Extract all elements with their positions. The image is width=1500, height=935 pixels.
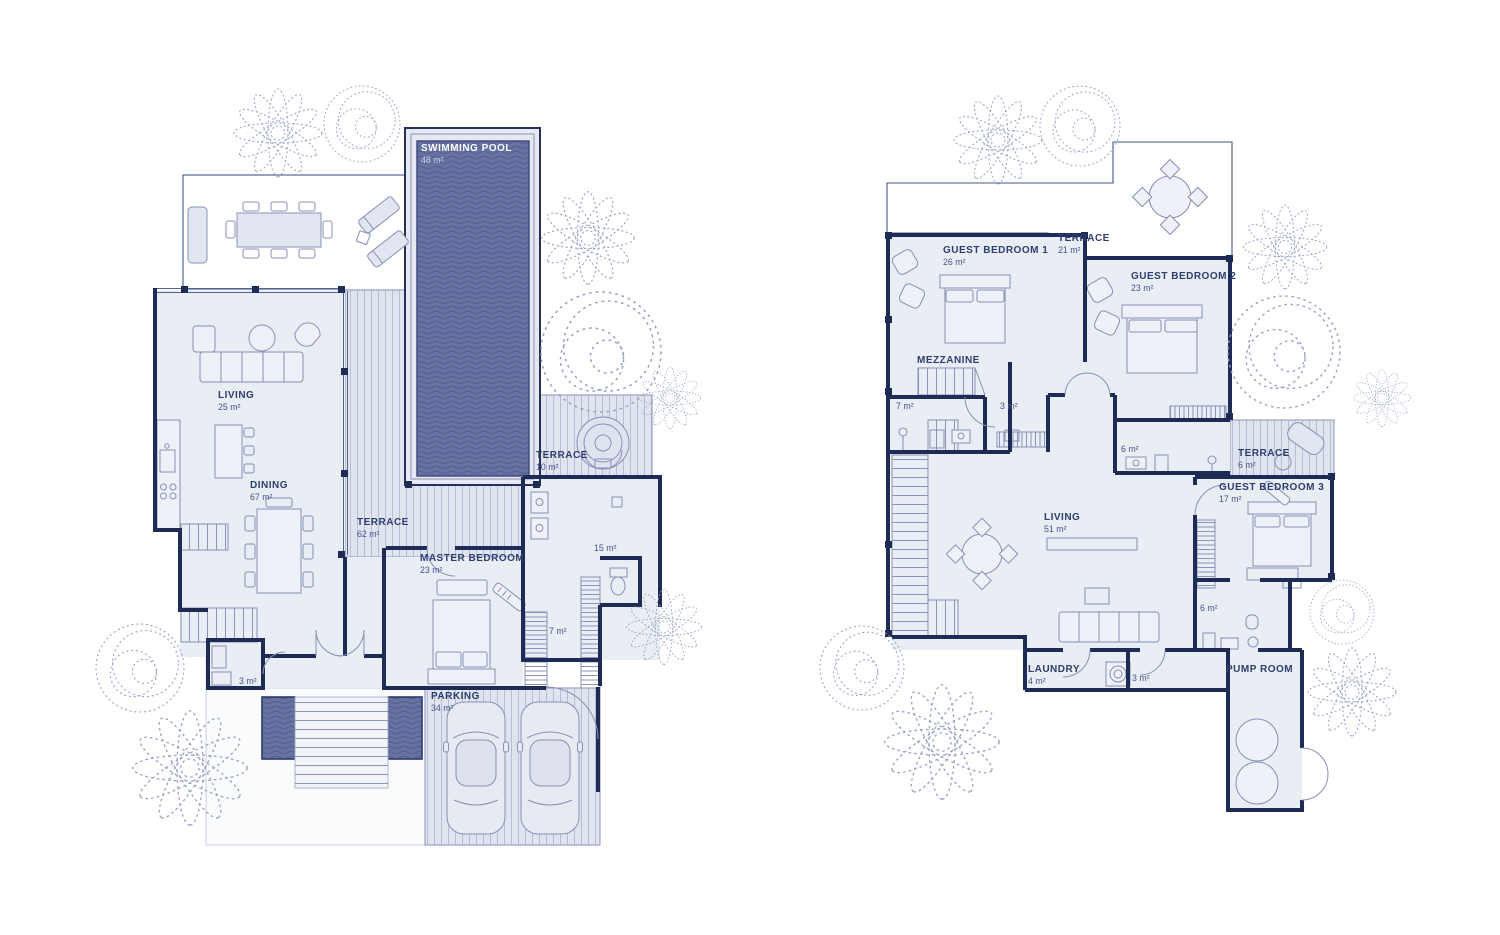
room-area-wardrobe-7: 7 m² [549,626,567,636]
living-furniture [193,323,320,382]
palm-tree [954,96,1042,184]
pool-water [417,141,529,476]
room-area-terrace-6: 6 m² [1238,460,1256,470]
round-tree [324,86,400,162]
room-label-laundry: LAUNDRY [1028,664,1080,675]
palm-tree [1243,205,1327,289]
room-area-wc-3b: 3 m² [1132,673,1150,683]
car-2 [518,702,583,834]
room-area-terrace-10: 10 m² [536,462,559,472]
room-area-bath-6: 6 m² [1121,444,1139,454]
room-label-swimming-pool: SWIMMING POOL [421,143,512,154]
room-area-living-upper: 51 m² [1044,524,1067,534]
round-tree [1040,86,1120,166]
pump-room-doors [1302,748,1328,800]
water-pond-right [388,697,422,759]
room-area-terrace-21: 21 m² [1058,245,1081,255]
ground-floor-plan [155,128,660,845]
room-label-living-upper: LIVING [1044,512,1080,523]
car-1 [444,702,509,834]
floor-plan-canvas: SWIMMING POOL 48 m² LIVING 25 m² DINING … [0,0,1500,935]
sun-lounger [357,196,400,234]
room-area-terrace-62: 62 m² [357,529,380,539]
room-area-master-bedroom: 23 m² [420,565,443,575]
room-label-pump-room: PUMP ROOM [1226,664,1293,675]
room-area-bathroom-15: 15 m² [594,543,617,553]
room-area-guest-bedroom-3: 17 m² [1219,494,1242,504]
room-label-terrace-62: TERRACE [357,517,409,528]
room-area-living: 25 m² [218,402,241,412]
room-area-bath-7: 7 m² [896,401,914,411]
large-tree [541,292,661,412]
room-label-guest-bedroom-3: GUEST BEDROOM 3 [1219,482,1324,493]
room-area-dining: 67 m² [250,492,273,502]
round-tree [820,626,904,710]
jacuzzi [577,417,629,469]
water-pond-left [262,697,295,759]
sun-lounger [366,230,409,268]
room-area-bath-6b: 6 m² [1200,603,1218,613]
palm-tree [234,89,322,177]
palm-tree [542,192,634,284]
palm-tree [885,685,999,799]
room-label-living: LIVING [218,390,254,401]
entry-steps [295,697,388,788]
room-label-mezzanine: MEZZANINE [917,355,980,366]
room-area-guest-bedroom-2: 23 m² [1131,283,1154,293]
round-tree [96,624,184,712]
terrace-sofa [188,207,207,263]
floor-plans-drawing: SWIMMING POOL 48 m² LIVING 25 m² DINING … [0,0,1500,935]
room-area-laundry: 4 m² [1028,676,1046,686]
room-area-parking: 34 m² [431,703,454,713]
room-area-guest-bedroom-1: 26 m² [943,257,966,267]
coffee-table [249,325,275,351]
large-tree [1228,296,1340,408]
palm-tree [1308,648,1396,736]
room-label-terrace-21: TERRACE [1058,233,1110,244]
room-area-wc-3: 3 m² [239,676,257,686]
room-label-dining: DINING [250,480,288,491]
room-area-swimming-pool: 48 m² [421,155,444,165]
round-tree [1310,580,1374,644]
palm-tree [1353,369,1410,426]
room-label-terrace-6: TERRACE [1238,448,1290,459]
kitchen-island [215,425,242,478]
mezzanine-stairs [918,368,985,395]
room-label-guest-bedroom-2: GUEST BEDROOM 2 [1131,271,1236,282]
terrace-table [1133,160,1208,235]
room-label-master-bedroom: MASTER BEDROOM [420,553,524,564]
outdoor-dining [188,196,409,268]
room-label-parking: PARKING [431,691,480,702]
swimming-pool [405,128,540,485]
room-label-guest-bedroom-1: GUEST BEDROOM 1 [943,245,1048,256]
room-area-wc-3: 3 m² [1000,401,1018,411]
room-label-terrace-10: TERRACE [536,450,588,461]
